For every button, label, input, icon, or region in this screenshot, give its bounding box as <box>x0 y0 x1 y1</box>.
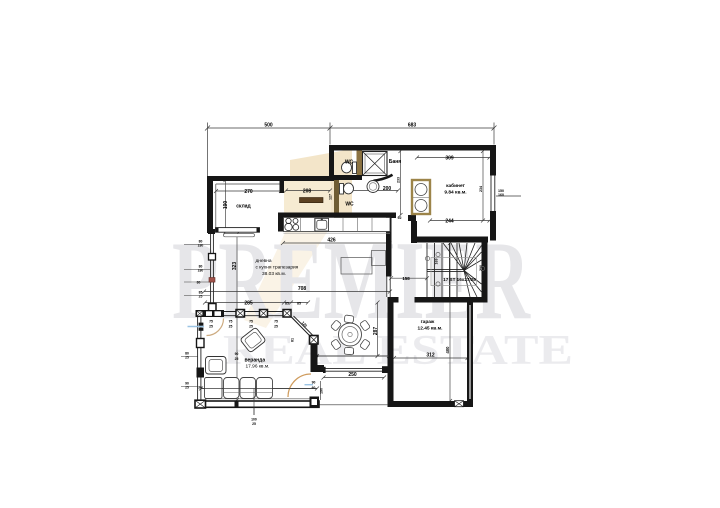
svg-text:500: 500 <box>264 122 273 128</box>
svg-text:208: 208 <box>303 189 312 195</box>
svg-text:75: 75 <box>229 320 233 324</box>
svg-text:169: 169 <box>435 259 439 265</box>
svg-text:234: 234 <box>479 186 483 192</box>
svg-text:210: 210 <box>479 265 483 271</box>
svg-text:17 ST 16x27/28: 17 ST 16x27/28 <box>443 277 476 282</box>
svg-text:190: 190 <box>319 388 323 394</box>
svg-text:с кухня трапезария: с кухня трапезария <box>256 265 299 270</box>
svg-text:285: 285 <box>244 301 253 307</box>
svg-text:60: 60 <box>312 386 316 390</box>
svg-text:гараж: гараж <box>421 320 435 325</box>
svg-text:160: 160 <box>498 193 504 197</box>
svg-text:81: 81 <box>291 338 295 342</box>
svg-text:90: 90 <box>235 352 239 356</box>
svg-text:90: 90 <box>312 381 316 385</box>
svg-text:312: 312 <box>426 353 435 359</box>
svg-text:200: 200 <box>383 186 392 192</box>
svg-text:400: 400 <box>445 346 450 354</box>
svg-text:270: 270 <box>244 189 253 195</box>
svg-text:85: 85 <box>285 302 289 306</box>
svg-text:190: 190 <box>223 201 229 210</box>
svg-text:Баня: Баня <box>389 159 401 165</box>
svg-text:дневна: дневна <box>256 259 272 264</box>
svg-text:127: 127 <box>329 194 333 200</box>
svg-text:92: 92 <box>398 216 402 220</box>
svg-text:323: 323 <box>232 262 238 271</box>
svg-text:25: 25 <box>274 325 278 329</box>
svg-text:244: 244 <box>445 219 454 225</box>
svg-text:233: 233 <box>397 177 401 183</box>
svg-text:85: 85 <box>297 302 301 306</box>
svg-text:100: 100 <box>251 418 257 422</box>
svg-text:25: 25 <box>229 325 233 329</box>
svg-text:80: 80 <box>197 281 201 285</box>
svg-text:287: 287 <box>373 327 379 336</box>
svg-text:веранда: веранда <box>245 357 266 363</box>
svg-text:38.03 кв.м.: 38.03 кв.м. <box>262 271 286 277</box>
svg-text:склад: склад <box>236 204 251 210</box>
svg-text:708: 708 <box>298 286 307 292</box>
svg-text:683: 683 <box>408 122 417 128</box>
svg-text:250: 250 <box>348 372 357 378</box>
svg-text:25: 25 <box>235 357 239 361</box>
svg-text:кабинет: кабинет <box>446 182 465 189</box>
svg-text:75: 75 <box>249 320 253 324</box>
svg-text:9.84 кв.м.: 9.84 кв.м. <box>444 189 466 195</box>
svg-text:25: 25 <box>249 325 253 329</box>
svg-text:25: 25 <box>252 422 256 426</box>
svg-text:36: 36 <box>198 386 202 390</box>
svg-text:12.45 кв.м.: 12.45 кв.м. <box>418 325 443 331</box>
svg-text:158: 158 <box>402 276 410 281</box>
svg-text:309: 309 <box>445 156 454 162</box>
svg-text:WC: WC <box>345 160 354 166</box>
svg-text:75: 75 <box>209 320 213 324</box>
svg-text:WC: WC <box>345 201 354 207</box>
svg-text:REAL ESTATE: REAL ESTATE <box>223 328 573 374</box>
svg-text:426: 426 <box>327 238 336 244</box>
svg-text:25: 25 <box>209 325 213 329</box>
svg-text:17.96 кв.м.: 17.96 кв.м. <box>246 363 270 369</box>
svg-text:75: 75 <box>274 320 278 324</box>
